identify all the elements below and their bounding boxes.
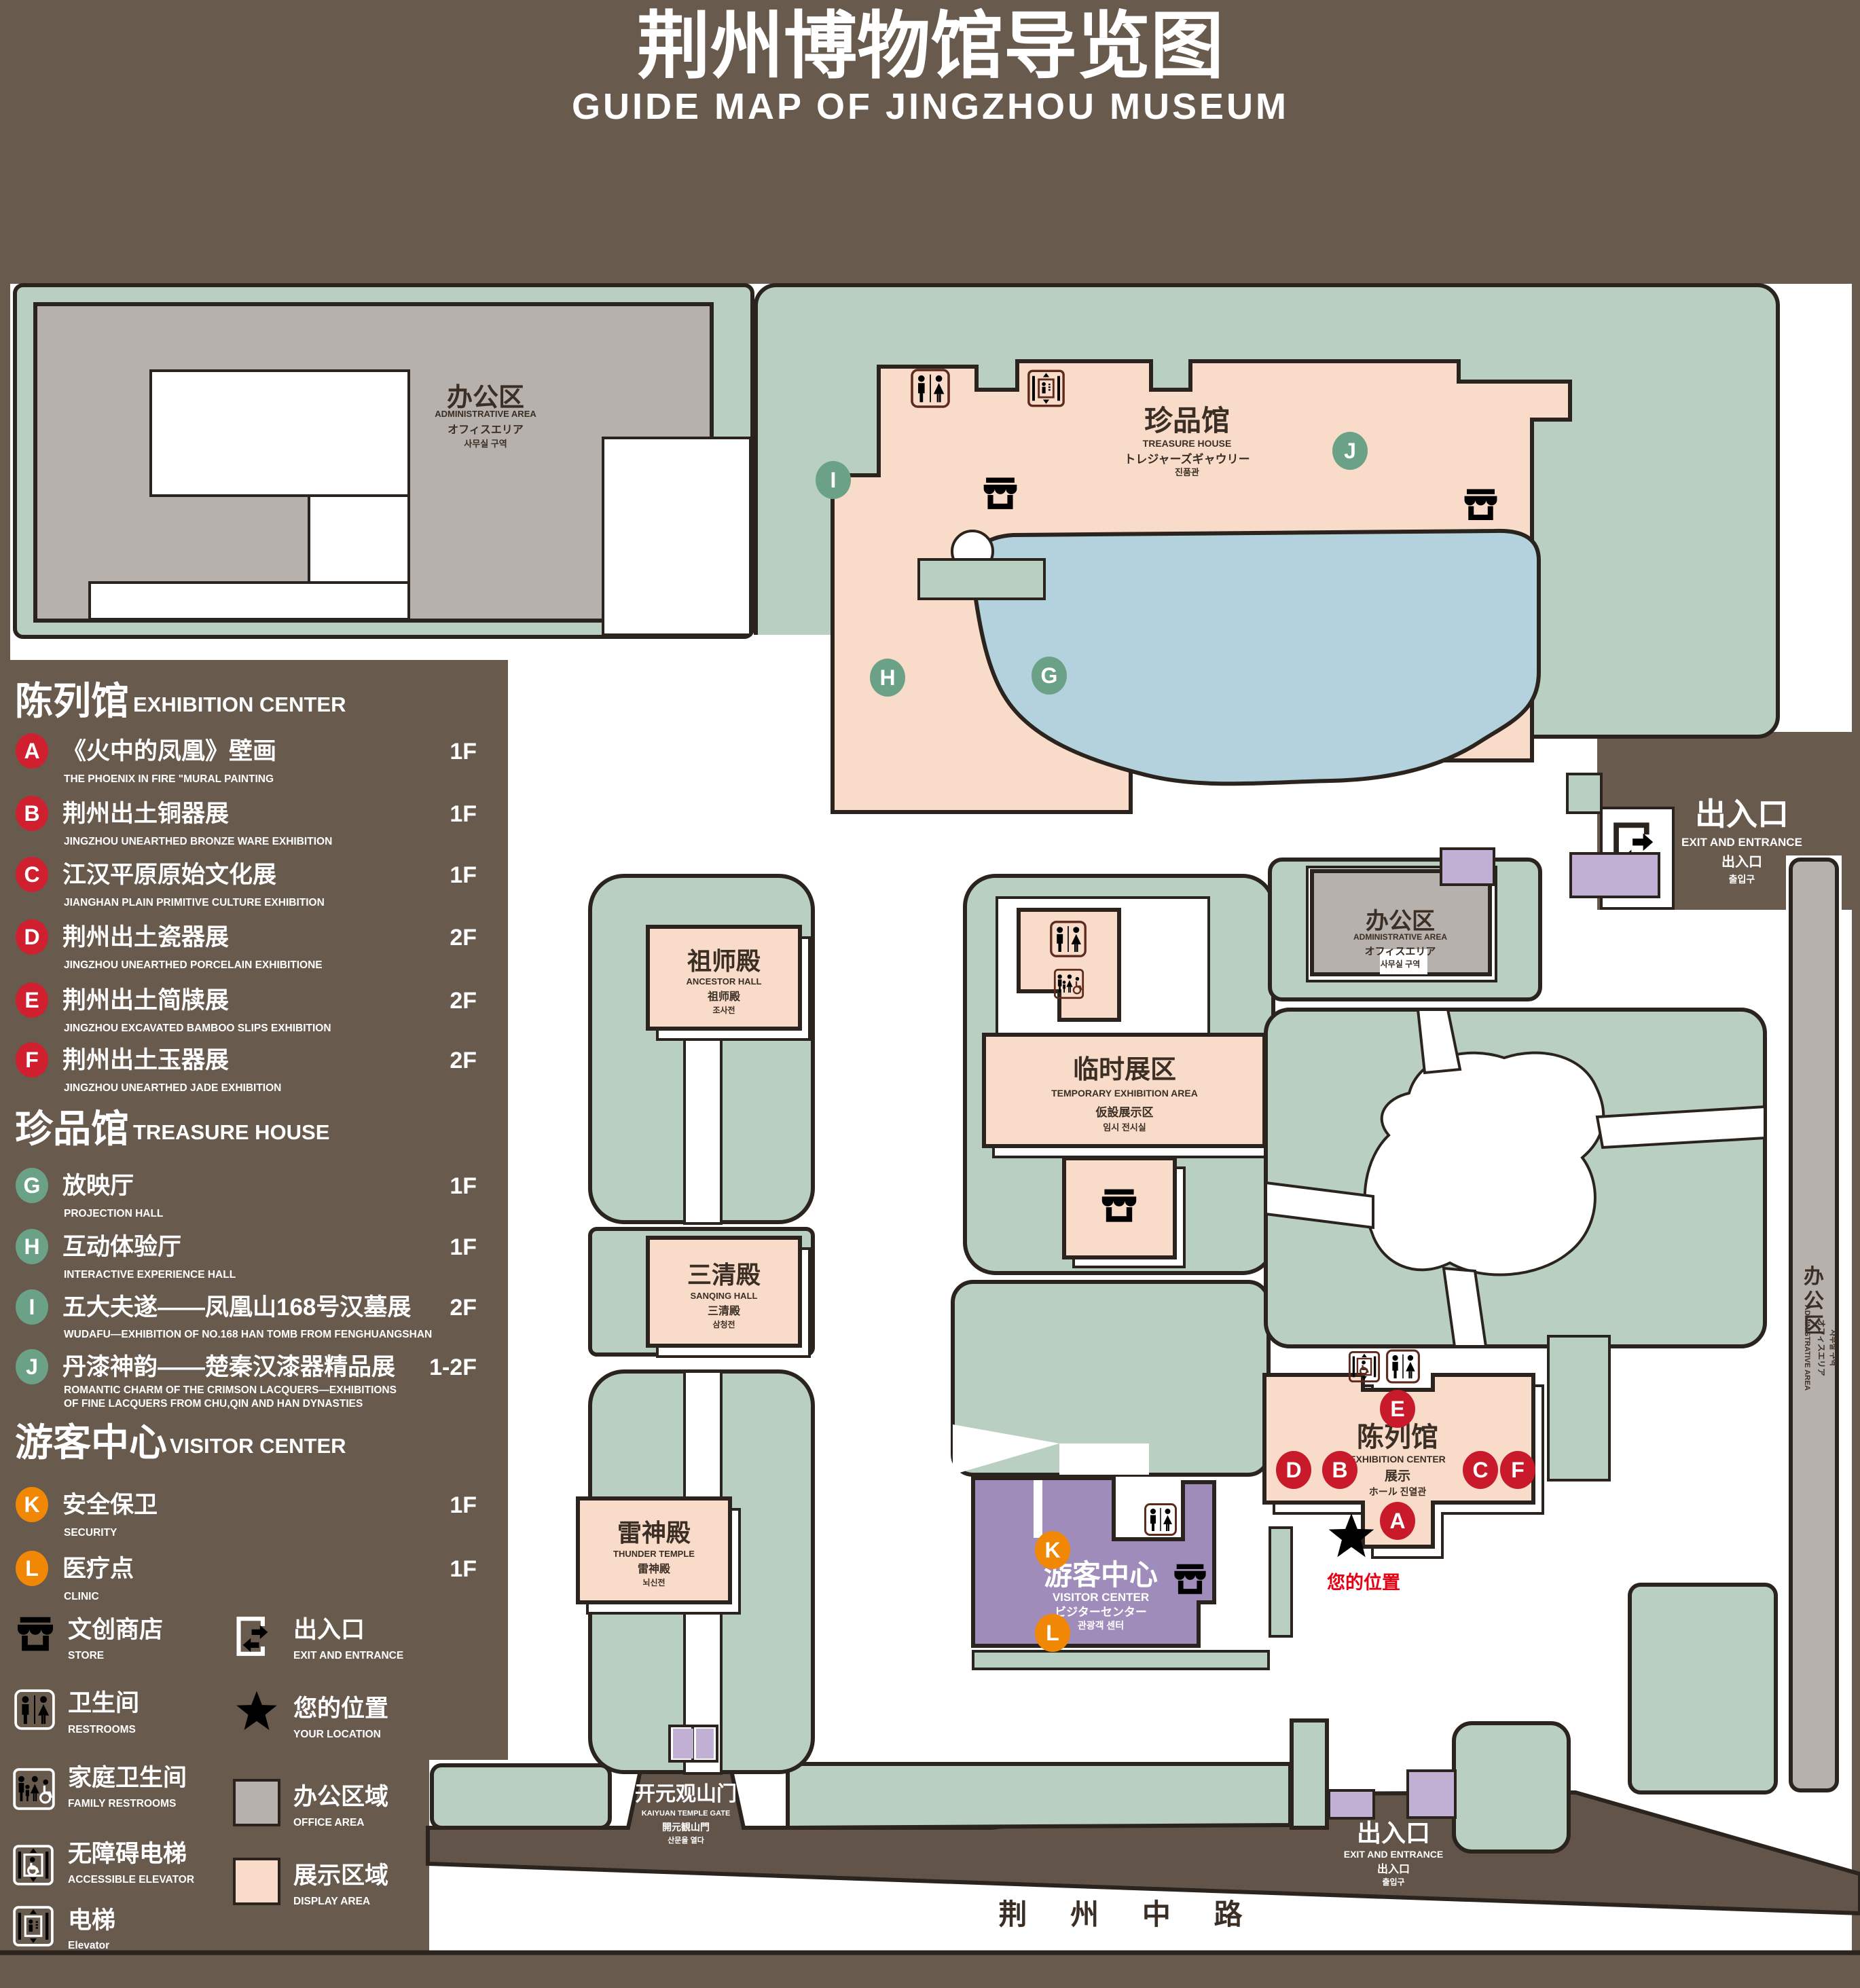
svg-text:K: K bbox=[24, 1492, 39, 1517]
svg-text:OF FINE LACQUERS FROM CHU,QIN: OF FINE LACQUERS FROM CHU,QIN AND HAN DY… bbox=[64, 1398, 363, 1410]
marker-L: L bbox=[1035, 1614, 1070, 1652]
svg-text:电梯: 电梯 bbox=[68, 1907, 115, 1934]
exit-mid-label-en: EXIT AND ENTRANCE bbox=[1681, 836, 1802, 849]
sanqing-label-ja: 三清殿 bbox=[708, 1305, 741, 1317]
svg-text:I: I bbox=[831, 468, 837, 492]
small-building bbox=[1408, 1771, 1455, 1818]
marker-H: H bbox=[870, 659, 905, 697]
svg-text:2F: 2F bbox=[450, 1295, 477, 1321]
temporary-exhibition-zone: 临时展区 TEMPORARY EXHIBITION AREA 仮設展示区 임시 … bbox=[965, 876, 1274, 1273]
svg-text:H: H bbox=[879, 665, 895, 690]
gate-label-zh: 开元观山门 bbox=[635, 1783, 737, 1805]
svg-text:B: B bbox=[1332, 1458, 1347, 1482]
marker-C: C bbox=[1463, 1451, 1498, 1489]
admin-nw-label-en: ADMINISTRATIVE AREA bbox=[435, 409, 536, 419]
svg-text:Elevator: Elevator bbox=[68, 1940, 109, 1951]
temp-label-zh: 临时展区 bbox=[1073, 1056, 1176, 1084]
bottom-strip bbox=[0, 1953, 1860, 1988]
treasure-label-ko: 진품관 bbox=[1175, 467, 1199, 477]
svg-text:C: C bbox=[24, 862, 39, 887]
road-label: 荆 州 中 路 bbox=[998, 1898, 1260, 1930]
small-building bbox=[1329, 1790, 1374, 1818]
marker-J: J bbox=[1332, 432, 1368, 470]
admin-e-label-zh: 办公区 bbox=[1366, 908, 1435, 934]
marker-A: A bbox=[1380, 1502, 1415, 1540]
svg-text:家庭卫生间: 家庭卫生间 bbox=[68, 1764, 187, 1791]
exit-mid-label-ja: 出入口 bbox=[1721, 854, 1762, 870]
pond-dock bbox=[919, 559, 1044, 599]
lawn-exit-south-east bbox=[1454, 1723, 1569, 1852]
marker-D: D bbox=[1276, 1451, 1311, 1489]
svg-text:互动体验厅: 互动体验厅 bbox=[62, 1234, 181, 1260]
svg-text:RESTROOMS: RESTROOMS bbox=[68, 1724, 136, 1735]
svg-text:THE PHOENIX IN FIRE "MURAL PAI: THE PHOENIX IN FIRE "MURAL PAINTING bbox=[64, 773, 274, 785]
gate-label-ko: 산문을 열다 bbox=[668, 1835, 705, 1845]
temp-label-ko: 임시 전시실 bbox=[1103, 1122, 1146, 1133]
svg-text:G: G bbox=[24, 1173, 41, 1198]
svg-text:荆州出土瓷器展: 荆州出土瓷器展 bbox=[62, 924, 229, 951]
exit-south-label-zh: 出入口 bbox=[1357, 1819, 1430, 1847]
svg-text:丹漆神韵——楚秦汉漆器精品展: 丹漆神韵——楚秦汉漆器精品展 bbox=[62, 1354, 395, 1380]
svg-text:JINGZHOU UNEARTHED BRONZE WARE: JINGZHOU UNEARTHED BRONZE WARE EXHIBITIO… bbox=[64, 836, 332, 847]
svg-text:2F: 2F bbox=[450, 925, 477, 951]
lawn-gate-east bbox=[788, 1764, 1290, 1828]
admin-strip-char: 办 bbox=[1804, 1266, 1824, 1288]
visitor-label-en: VISITOR CENTER bbox=[1053, 1591, 1149, 1604]
svg-text:JIANGHAN PLAIN PRIMITIVE CULTU: JIANGHAN PLAIN PRIMITIVE CULTURE EXHIBIT… bbox=[64, 897, 325, 908]
svg-text:L: L bbox=[1046, 1621, 1059, 1645]
exhibition-label-en: EXHIBITION CENTER bbox=[1349, 1454, 1446, 1465]
svg-text:YOUR LOCATION: YOUR LOCATION bbox=[293, 1729, 381, 1740]
page-title: 荆州博物馆导览图 bbox=[637, 5, 1224, 87]
admin-area-east: 办公区 ADMINISTRATIVE AREA オフィスエリア 사무실 구역 bbox=[1270, 849, 1540, 999]
display-area-swatch bbox=[234, 1859, 279, 1904]
svg-text:1F: 1F bbox=[450, 1173, 477, 1199]
ancestor-label-ja: 祖师殿 bbox=[707, 990, 741, 1003]
svg-text:荆州出土铜器展: 荆州出土铜器展 bbox=[62, 800, 229, 827]
svg-text:放映厅: 放映厅 bbox=[62, 1173, 134, 1199]
thunder-label-en: THUNDER TEMPLE bbox=[613, 1549, 695, 1559]
legend-symbol-restrooms: 卫生间 RESTROOMS bbox=[16, 1690, 139, 1735]
svg-text:1F: 1F bbox=[450, 739, 477, 765]
page-subtitle: GUIDE MAP OF JINGZHOU MUSEUM bbox=[572, 86, 1289, 127]
admin-nw-label-zh: 办公区 bbox=[447, 384, 524, 412]
svg-text:OFFICE AREA: OFFICE AREA bbox=[293, 1817, 364, 1828]
svg-text:H: H bbox=[24, 1234, 39, 1259]
museum-guide-map: 办公区 ADMINISTRATIVE AREA オフィスエリア 사무실 구역 珍… bbox=[0, 0, 1860, 1988]
treasure-label-zh: 珍品馆 bbox=[1144, 405, 1230, 437]
svg-text:五大夫遂——凤凰山168号汉墓展: 五大夫遂——凤凰山168号汉墓展 bbox=[62, 1294, 411, 1321]
visitor-label-ko: 관광객 센터 bbox=[1078, 1620, 1124, 1631]
svg-text:PROJECTION HALL: PROJECTION HALL bbox=[64, 1208, 163, 1219]
svg-text:WUDAFU—EXHIBITION OF NO.168 HA: WUDAFU—EXHIBITION OF NO.168 HAN TOMB FRO… bbox=[64, 1329, 432, 1340]
marker-I: I bbox=[816, 461, 851, 499]
admin-nw-label-ko: 사무실 구역 bbox=[464, 439, 507, 449]
svg-text:1F: 1F bbox=[450, 1234, 477, 1260]
svg-text:J: J bbox=[1344, 439, 1356, 463]
sanqing-label-en: SANQING HALL bbox=[691, 1291, 758, 1301]
svg-text:1F: 1F bbox=[450, 1556, 477, 1582]
svg-text:A: A bbox=[1389, 1509, 1405, 1533]
temple-axis: 祖师殿 ANCESTOR HALL 祖师殿 조사전 三清殿 SANQING HA… bbox=[578, 876, 813, 1773]
admin-e-label-en: ADMINISTRATIVE AREA bbox=[1353, 932, 1447, 942]
marker-K: K bbox=[1035, 1531, 1070, 1569]
svg-text:E: E bbox=[1390, 1397, 1404, 1421]
legend-section-title-en: EXHIBITION CENTER bbox=[133, 693, 346, 716]
svg-text:L: L bbox=[25, 1556, 39, 1581]
svg-text:E: E bbox=[24, 988, 39, 1012]
svg-text:ROMANTIC CHARM OF THE CRIMSON: ROMANTIC CHARM OF THE CRIMSON LACQUERS—E… bbox=[64, 1384, 397, 1396]
svg-text:展示区域: 展示区域 bbox=[293, 1862, 388, 1889]
store-icon bbox=[1465, 489, 1497, 520]
store-icon bbox=[984, 477, 1017, 509]
svg-text:1-2F: 1-2F bbox=[429, 1355, 477, 1380]
exit-south-label-ko: 출입구 bbox=[1382, 1877, 1404, 1887]
svg-text:CLINIC: CLINIC bbox=[64, 1591, 99, 1602]
your-location-label: 您的位置 bbox=[1327, 1572, 1400, 1593]
svg-text:2F: 2F bbox=[450, 988, 477, 1014]
legend-section-title-en: VISITOR CENTER bbox=[170, 1434, 346, 1458]
svg-text:荆州出土玉器展: 荆州出土玉器展 bbox=[62, 1047, 229, 1073]
svg-text:江汉平原原始文化展: 江汉平原原始文化展 bbox=[62, 862, 276, 888]
marker-F: F bbox=[1500, 1451, 1535, 1489]
marker-B: B bbox=[1322, 1451, 1357, 1489]
ancestor-label-zh: 祖师殿 bbox=[687, 947, 761, 975]
svg-text:无障碍电梯: 无障碍电梯 bbox=[68, 1841, 187, 1867]
legend-symbol-display-area: 展示区域 DISPLAY AREA bbox=[234, 1859, 388, 1907]
marker-G: G bbox=[1032, 657, 1067, 695]
sanqing-label-ko: 삼청전 bbox=[712, 1319, 735, 1329]
svg-text:FAMILY RESTROOMS: FAMILY RESTROOMS bbox=[68, 1798, 176, 1809]
treasure-label-ja: トレジャーズギャウリー bbox=[1124, 452, 1250, 466]
svg-text:1F: 1F bbox=[450, 801, 477, 827]
svg-text:G: G bbox=[1041, 663, 1058, 688]
svg-text:1F: 1F bbox=[450, 862, 477, 888]
treasure-label-en: TREASURE HOUSE bbox=[1143, 438, 1232, 449]
sanqing-label-zh: 三清殿 bbox=[687, 1261, 761, 1289]
gate-label-ja: 開元観山門 bbox=[662, 1822, 710, 1833]
svg-text:荆州出土简牍展: 荆州出土简牍展 bbox=[62, 987, 229, 1014]
legend-section-title: 陈列馆 bbox=[15, 680, 129, 722]
svg-text:ACCESSIBLE ELEVATOR: ACCESSIBLE ELEVATOR bbox=[68, 1874, 194, 1885]
svg-text:DISPLAY AREA: DISPLAY AREA bbox=[293, 1896, 370, 1907]
ancestor-label-en: ANCESTOR HALL bbox=[687, 976, 762, 987]
gate-label-en: KAIYUAN TEMPLE GATE bbox=[642, 1809, 731, 1818]
store-icon bbox=[1102, 1190, 1136, 1222]
svg-text:办公区域: 办公区域 bbox=[293, 1784, 388, 1810]
svg-text:INTERACTIVE EXPERIENCE HALL: INTERACTIVE EXPERIENCE HALL bbox=[64, 1269, 236, 1281]
svg-text:JINGZHOU EXCAVATED BAMBOO SLIP: JINGZHOU EXCAVATED BAMBOO SLIPS EXHIBITI… bbox=[64, 1023, 331, 1034]
thunder-label-ja: 雷神殿 bbox=[638, 1562, 671, 1575]
legend-section-title-en: TREASURE HOUSE bbox=[133, 1120, 329, 1144]
svg-text:J: J bbox=[26, 1355, 38, 1379]
svg-text:C: C bbox=[1472, 1458, 1488, 1482]
exit-mid-label-zh: 出入口 bbox=[1695, 796, 1789, 832]
small-building bbox=[1571, 853, 1659, 897]
store-icon bbox=[1174, 1564, 1205, 1594]
exhibition-label-zh2: 展示 bbox=[1385, 1469, 1410, 1484]
svg-text:JINGZHOU UNEARTHED PORCELAIN E: JINGZHOU UNEARTHED PORCELAIN EXHIBITIONE bbox=[64, 959, 323, 971]
svg-text:《火中的凤凰》壁画: 《火中的凤凰》壁画 bbox=[62, 738, 276, 765]
marker-E: E bbox=[1380, 1390, 1415, 1428]
svg-text:文创商店: 文创商店 bbox=[68, 1617, 163, 1643]
exit-mid-label-ko: 출입구 bbox=[1729, 874, 1755, 885]
store-building bbox=[1064, 1158, 1175, 1257]
admin-e-label-ja: オフィスエリア bbox=[1365, 946, 1436, 957]
svg-text:A: A bbox=[24, 739, 39, 763]
svg-text:B: B bbox=[24, 801, 39, 826]
admin-strip-ko: 사무실 구역 bbox=[1829, 1329, 1838, 1366]
office-area-swatch bbox=[234, 1780, 279, 1825]
svg-text:2F: 2F bbox=[450, 1048, 477, 1073]
thunder-label-ko: 뇌신전 bbox=[642, 1577, 665, 1587]
admin-nw-label-ja: オフィスエリア bbox=[448, 424, 524, 436]
thunder-label-zh: 雷神殿 bbox=[617, 1519, 691, 1547]
admin-e-label-ko: 사무실 구역 bbox=[1381, 959, 1421, 969]
svg-text:1F: 1F bbox=[450, 1492, 477, 1518]
svg-text:F: F bbox=[25, 1048, 39, 1072]
svg-text:D: D bbox=[24, 925, 39, 949]
svg-text:D: D bbox=[1285, 1458, 1301, 1482]
ancestor-label-ko: 조사전 bbox=[712, 1005, 735, 1015]
admin-area-northwest: 办公区 ADMINISTRATIVE AREA オフィスエリア 사무실 구역 bbox=[15, 285, 752, 637]
legend-section-title: 游客中心 bbox=[15, 1421, 167, 1464]
svg-text:医疗点: 医疗点 bbox=[62, 1556, 134, 1582]
lawn-exit-south-west bbox=[1292, 1720, 1327, 1828]
lawn-gate-west bbox=[432, 1765, 610, 1828]
legend-section-title: 珍品馆 bbox=[15, 1107, 129, 1150]
svg-text:EXIT AND ENTRANCE: EXIT AND ENTRANCE bbox=[293, 1650, 403, 1661]
admin-strip-en: ADMINISTRATIVE AREA bbox=[1803, 1305, 1811, 1391]
svg-text:您的位置: 您的位置 bbox=[293, 1695, 388, 1722]
admin-strip-east: 办 公 区 ADMINISTRATIVE AREA オフィスエリア 사무실 구역 bbox=[1786, 855, 1842, 1795]
exhibition-label-jk: ホール 진열관 bbox=[1369, 1486, 1427, 1497]
svg-text:K: K bbox=[1044, 1538, 1060, 1562]
svg-text:I: I bbox=[29, 1295, 35, 1319]
svg-text:JINGZHOU UNEARTHED JADE EXHIBI: JINGZHOU UNEARTHED JADE EXHIBITION bbox=[64, 1082, 281, 1094]
temp-label-en: TEMPORARY EXHIBITION AREA bbox=[1051, 1088, 1198, 1099]
lawn-southeast bbox=[1630, 1585, 1776, 1792]
svg-text:卫生间: 卫生间 bbox=[68, 1690, 139, 1716]
exit-south-label-ja: 出入口 bbox=[1377, 1862, 1410, 1875]
svg-text:F: F bbox=[1511, 1458, 1525, 1482]
temp-label-ja: 仮設展示区 bbox=[1095, 1105, 1154, 1119]
svg-text:安全保卫: 安全保卫 bbox=[62, 1491, 158, 1518]
admin-strip-ja: オフィスエリア bbox=[1817, 1319, 1826, 1376]
exit-south-label-en: EXIT AND ENTRANCE bbox=[1344, 1849, 1444, 1860]
garden bbox=[1266, 1010, 1765, 1346]
treasure-house-area: 珍品馆 TREASURE HOUSE トレジャーズギャウリー 진품관 bbox=[752, 285, 1778, 813]
svg-text:SECURITY: SECURITY bbox=[64, 1527, 117, 1539]
svg-text:STORE: STORE bbox=[68, 1650, 104, 1661]
svg-text:出入口: 出入口 bbox=[293, 1617, 365, 1643]
store-icon bbox=[18, 1617, 53, 1651]
legend-item-I: I 五大夫遂——凤凰山168号汉墓展 WUDAFU—EXHIBITION OF … bbox=[16, 1289, 477, 1340]
small-building bbox=[1441, 849, 1494, 885]
visitor-label-ja: ビジターセンター bbox=[1055, 1606, 1147, 1619]
